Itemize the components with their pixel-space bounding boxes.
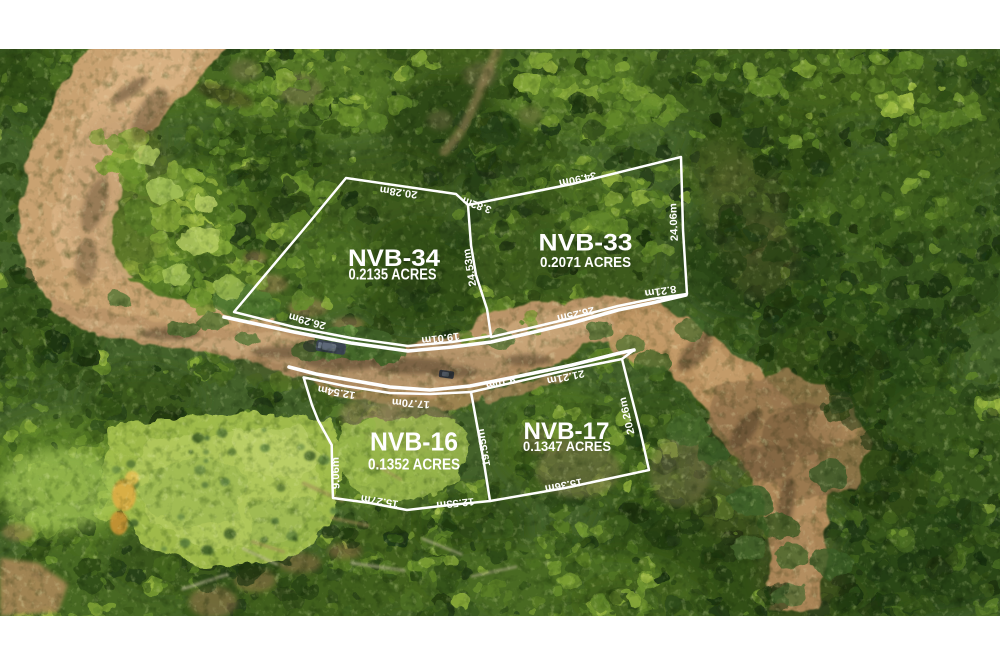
svg-text:0.1352 ACRES: 0.1352 ACRES <box>368 457 460 474</box>
svg-text:0.1347 ACRES: 0.1347 ACRES <box>523 439 611 454</box>
svg-text:NVB-16: NVB-16 <box>370 427 458 457</box>
svg-text:0.2071 ACRES: 0.2071 ACRES <box>540 254 631 271</box>
svg-text:0.2135 ACRES: 0.2135 ACRES <box>349 267 437 284</box>
svg-text:NVB-33: NVB-33 <box>539 230 633 257</box>
svg-text:9.06m: 9.06m <box>330 457 343 489</box>
svg-text:24.06m: 24.06m <box>667 203 681 241</box>
